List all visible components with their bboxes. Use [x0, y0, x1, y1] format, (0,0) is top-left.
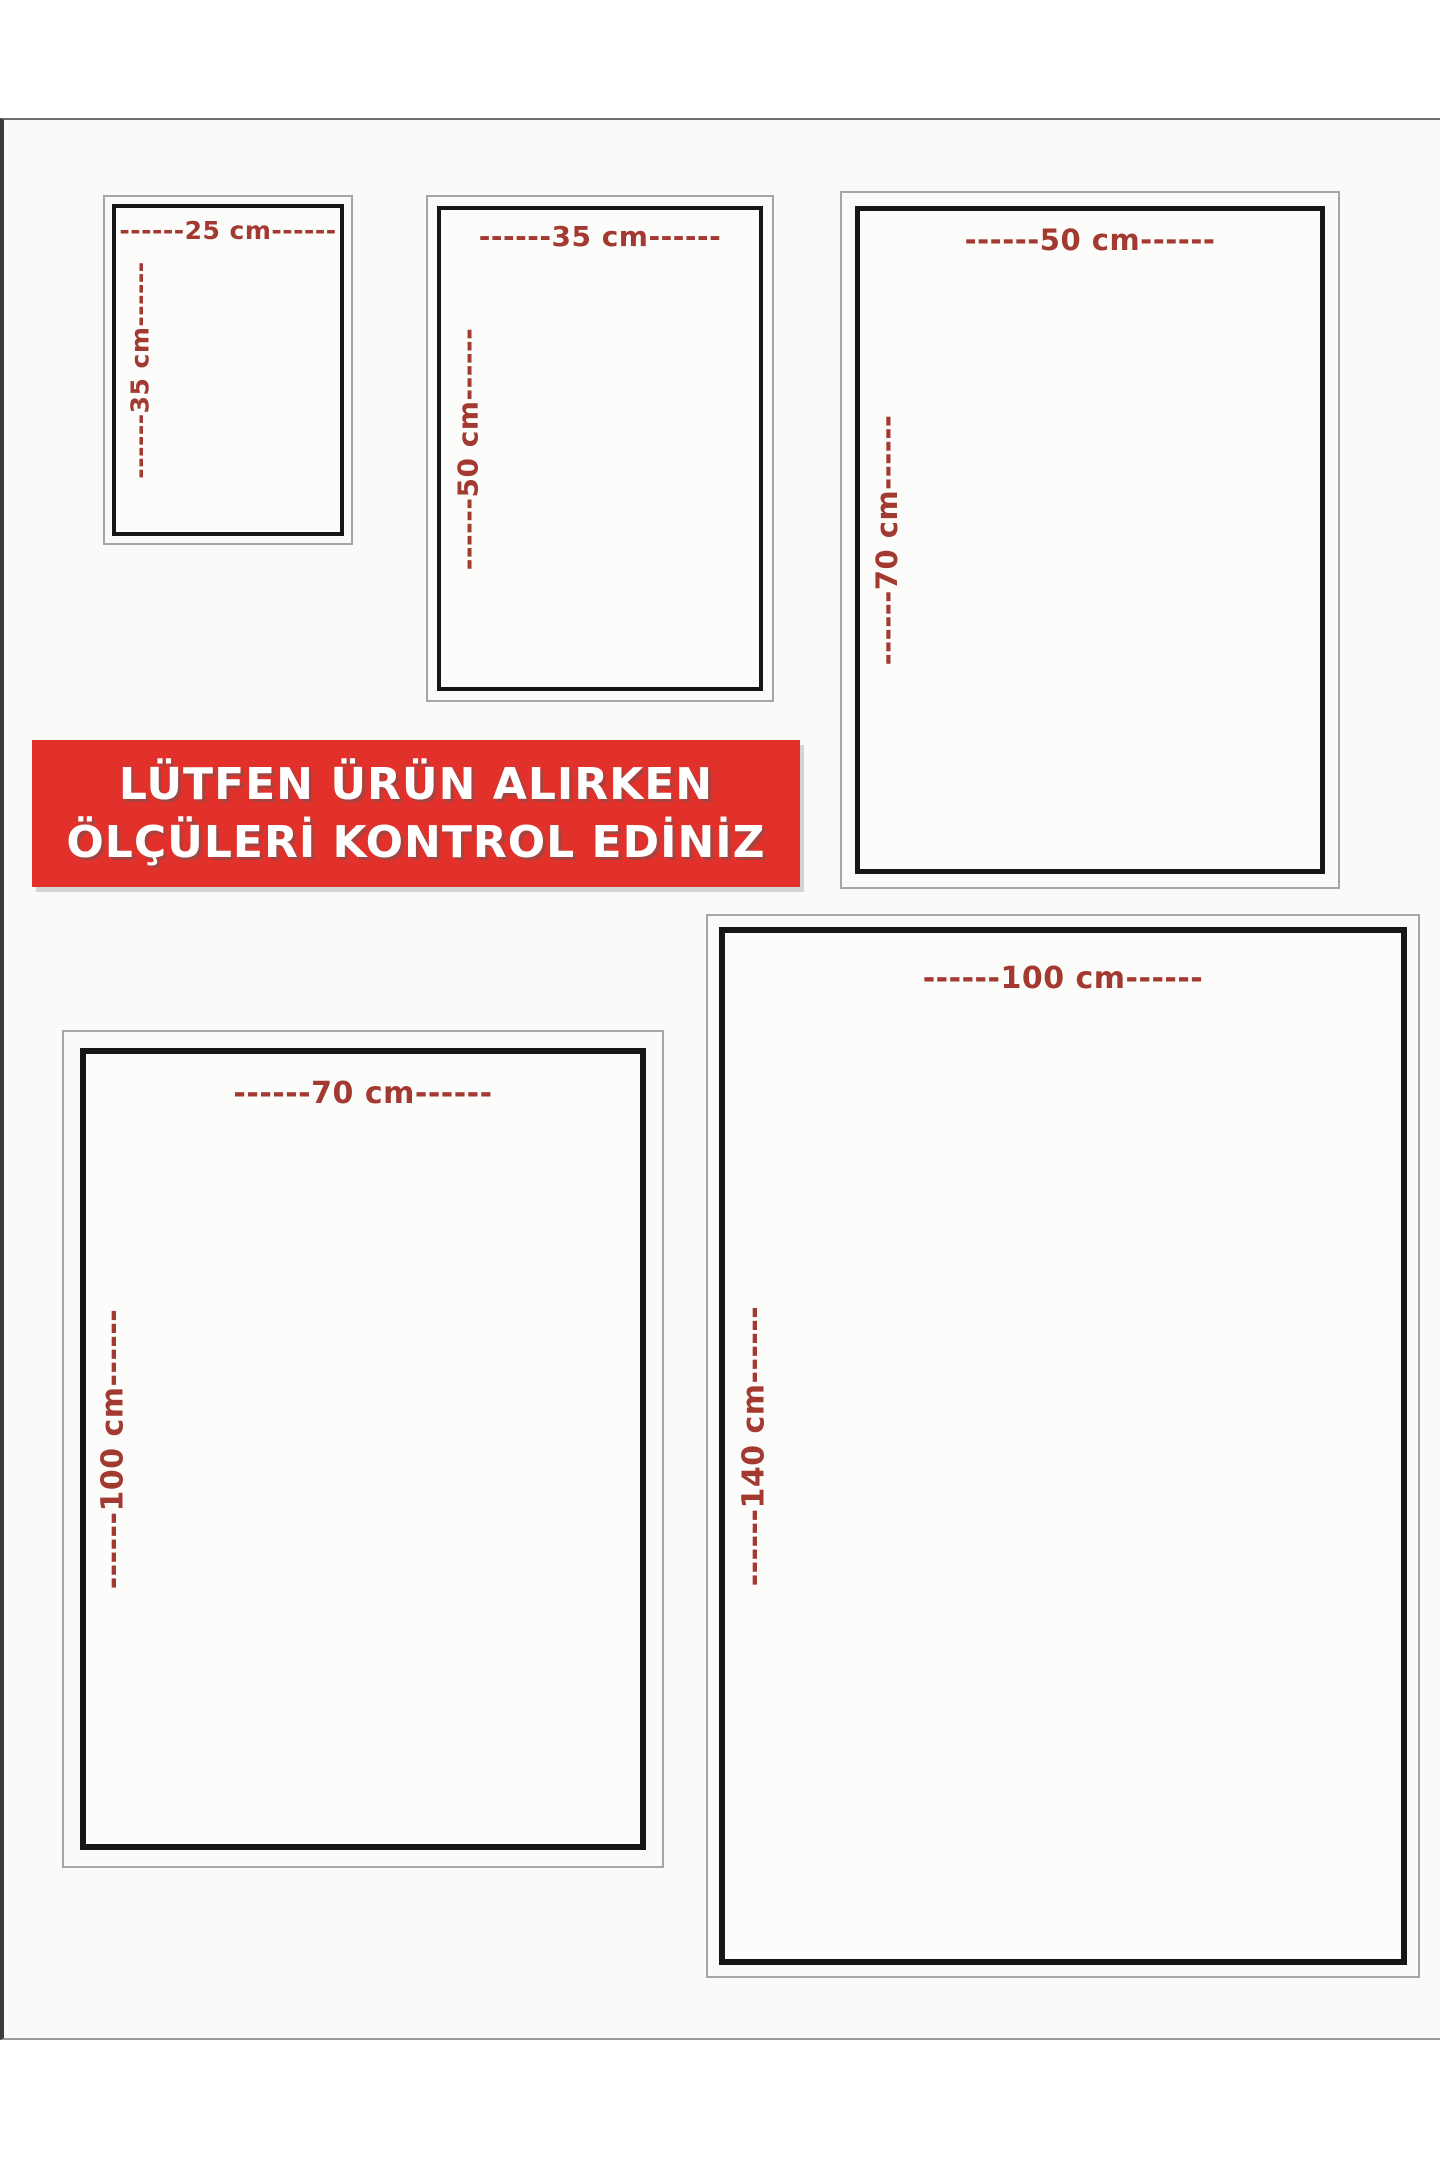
size-frame-35x50: ------35 cm------ ------50 cm------ [426, 195, 774, 702]
height-dimension-label: ------50 cm------ [452, 327, 485, 569]
width-dimension-label: ------100 cm------ [725, 961, 1401, 996]
width-dimension-label: ------50 cm------ [860, 223, 1320, 257]
size-frame-inner: ------70 cm------ ------100 cm------ [80, 1048, 646, 1850]
size-frame-50x70: ------50 cm------ ------70 cm------ [840, 191, 1340, 889]
warning-line-2: ÖLÇÜLERİ KONTROL EDİNİZ [66, 816, 765, 870]
size-guide-image: ------25 cm------ ------35 cm------ ----… [0, 0, 1440, 2160]
height-dimension-label: ------100 cm------ [96, 1309, 131, 1590]
width-dimension-label: ------25 cm------ [116, 216, 340, 245]
width-dimension-label: ------70 cm------ [86, 1076, 640, 1111]
size-frame-inner: ------25 cm------ ------35 cm------ [112, 204, 344, 536]
size-frame-inner: ------50 cm------ ------70 cm------ [855, 206, 1325, 874]
warning-banner: LÜTFEN ÜRÜN ALIRKEN ÖLÇÜLERİ KONTROL EDİ… [32, 740, 800, 887]
height-dimension-label: ------35 cm------ [126, 261, 155, 478]
photo-area: ------25 cm------ ------35 cm------ ----… [0, 118, 1440, 2040]
height-dimension-label: ------70 cm------ [870, 415, 904, 666]
warning-line-1: LÜTFEN ÜRÜN ALIRKEN [119, 758, 713, 812]
size-frame-25x35: ------25 cm------ ------35 cm------ [103, 195, 353, 545]
size-frame-100x140: ------100 cm------ ------140 cm------ [706, 914, 1420, 1978]
size-frame-70x100: ------70 cm------ ------100 cm------ [62, 1030, 664, 1868]
height-dimension-label: ------140 cm------ [737, 1306, 772, 1587]
width-dimension-label: ------35 cm------ [441, 220, 759, 253]
size-frame-inner: ------35 cm------ ------50 cm------ [437, 206, 763, 691]
size-frame-inner: ------100 cm------ ------140 cm------ [719, 927, 1407, 1965]
